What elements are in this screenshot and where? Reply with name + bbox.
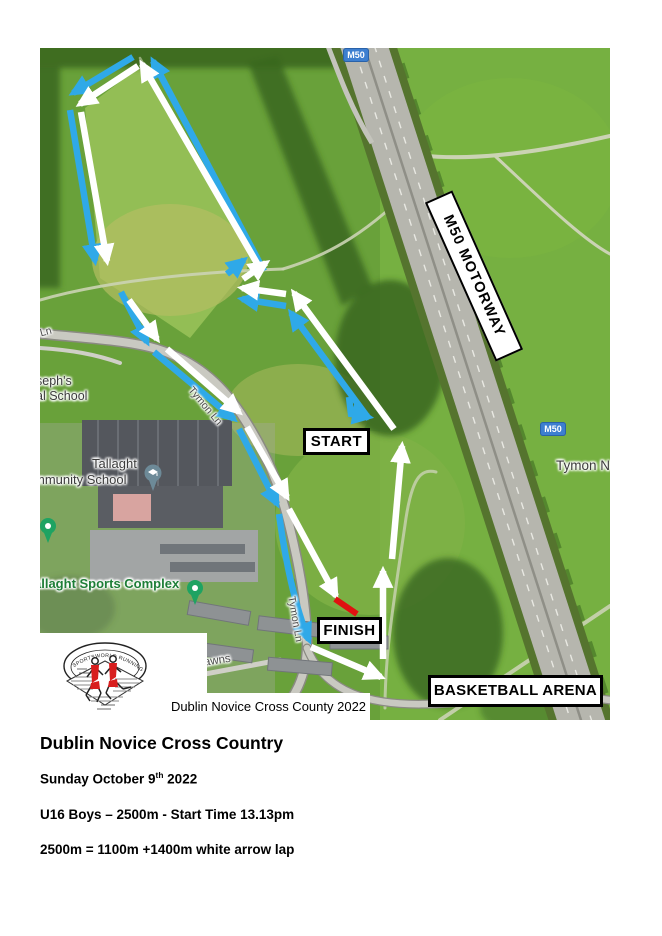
label-school-2: Tallaght mmunity School (40, 456, 137, 488)
label-school-1-line1: seph's (40, 374, 87, 389)
event-date-prefix: Sunday October 9 (40, 772, 156, 787)
label-school-2-line1: Tallaght (92, 456, 137, 472)
club-logo: SPORTSWORLD RUNNING CLUB (57, 639, 153, 720)
m50-shield: M50 (343, 48, 369, 62)
label-tymon-north: Tymon N (556, 458, 610, 473)
finish-label-box: FINISH (317, 617, 382, 644)
m50-shield: M50 (540, 422, 566, 436)
label-school-1: seph's al School (40, 374, 87, 404)
event-lap-info: 2500m = 1100m +1400m white arrow lap (40, 842, 294, 857)
label-sports-complex: allaght Sports Complex (40, 576, 179, 591)
label-school-1-line2: al School (40, 389, 87, 404)
label-school-2-line2: mmunity School (40, 472, 137, 488)
start-label-box: START (303, 428, 370, 455)
event-date-year: 2022 (163, 772, 197, 787)
event-title: Dublin Novice Cross Country (40, 733, 294, 754)
arena-label-box: BASKETBALL ARENA (428, 675, 603, 707)
event-date: Sunday October 9th 2022 (40, 770, 294, 787)
event-details: Dublin Novice Cross Country Sunday Octob… (40, 733, 294, 877)
map-caption: Dublin Novice Cross County 2022 (167, 693, 370, 720)
event-race-info: U16 Boys – 2500m - Start Time 13.13pm (40, 807, 294, 822)
document-page: M50 M50 seph's al School Tallaght mmunit… (0, 0, 662, 936)
course-map: M50 M50 seph's al School Tallaght mmunit… (40, 48, 610, 720)
